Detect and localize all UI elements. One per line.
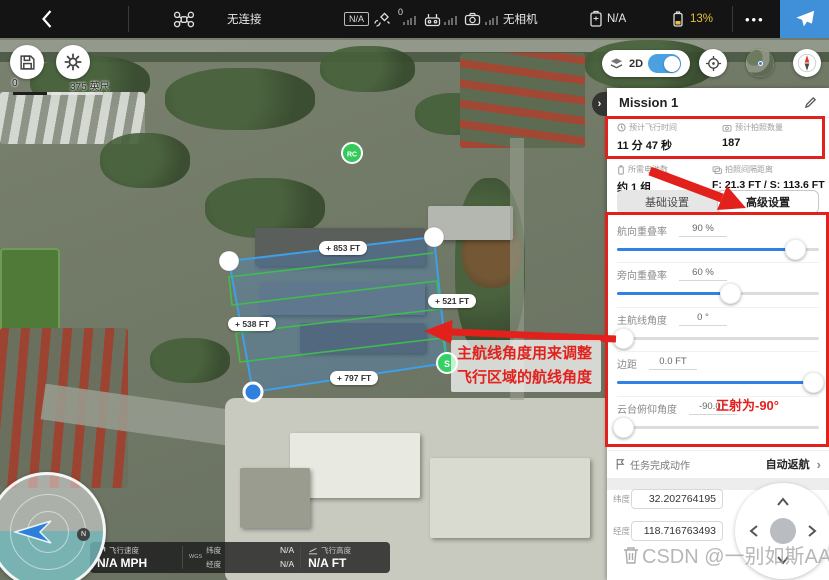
telemetry-lng-label: 经度 — [206, 559, 221, 570]
chevron-right-icon: › — [817, 457, 821, 472]
scale-bar-dark — [13, 92, 47, 95]
rc-battery-percent: 13% — [690, 0, 713, 38]
slider-value-field[interactable]: 0 ° — [679, 312, 727, 326]
edit-pencil-icon[interactable] — [804, 96, 817, 109]
camera-small-icon — [722, 124, 732, 132]
camera-status: 无相机 — [503, 0, 538, 38]
app-screen: S RC + 853 FT + 521 FT + 538 FT + 797 FT… — [0, 0, 829, 580]
nudge-right-button[interactable] — [805, 524, 819, 538]
slider-knob[interactable] — [613, 417, 634, 438]
mission-title: Mission 1 — [619, 95, 678, 110]
topbar-divider — [128, 6, 129, 32]
map-trees — [320, 46, 415, 92]
map-trees — [150, 338, 230, 383]
scale-zero-label: 0 — [12, 78, 18, 89]
nudge-dpad — [735, 483, 829, 579]
slider-knob[interactable] — [720, 283, 741, 304]
stat-photo-count: 预计拍照数量 187 — [722, 122, 826, 149]
map-trees — [165, 68, 315, 130]
compass-north-badge: N — [77, 528, 90, 541]
edge-distance-label[interactable]: + 797 FT — [330, 371, 378, 385]
latitude-label: 纬度 — [607, 493, 631, 505]
aircraft-connection-status[interactable]: 无连接 — [227, 0, 262, 38]
side-overlap-slider[interactable] — [617, 292, 819, 295]
tab-basic-settings[interactable]: 基础设置 — [617, 190, 717, 214]
telemetry-altitude: 飞行高度 N/A FT — [301, 542, 389, 573]
back-button[interactable] — [40, 0, 53, 38]
topbar-divider — [732, 6, 733, 32]
scale-distance-label: 375 英尺 — [70, 78, 109, 93]
map-2d-toggle[interactable] — [648, 54, 681, 73]
takeoff-airplane-icon — [794, 8, 816, 30]
altitude-label: 飞行高度 — [321, 545, 351, 556]
compass-reset-button[interactable] — [793, 49, 821, 77]
map-mode-control[interactable]: 2D — [602, 50, 690, 77]
slider-group-side-overlap: 旁向重叠率 60 % — [607, 266, 829, 310]
aircraft-icon — [173, 0, 195, 38]
telemetry-coordinates: WGS 纬度N/A 经度N/A — [183, 542, 300, 573]
takeoff-button[interactable] — [780, 0, 829, 38]
slider-value-field[interactable]: 0.0 FT — [649, 356, 697, 370]
toggle-knob — [664, 56, 680, 72]
telemetry-lat-label: 纬度 — [206, 545, 221, 556]
slider-knob[interactable] — [785, 239, 806, 260]
map-settings-button[interactable] — [56, 45, 90, 79]
flag-icon — [615, 458, 625, 470]
divider — [617, 262, 819, 263]
more-icon: ••• — [745, 12, 765, 27]
telemetry-lat-value: N/A — [280, 545, 294, 556]
stat-photo-interval: 拍照间隔距离 F: 21.3 FT / S: 113.6 FT — [712, 164, 827, 191]
map-building — [428, 206, 513, 240]
front-overlap-slider[interactable] — [617, 248, 819, 251]
telemetry-lng-value: N/A — [280, 559, 294, 570]
satellite-icon[interactable] — [374, 0, 391, 38]
map-trees — [100, 133, 190, 188]
speed-value: N/A MPH — [97, 556, 175, 570]
slider-label: 航向重叠率 — [617, 223, 667, 238]
back-chevron-icon — [40, 9, 53, 29]
slider-label: 边距 — [617, 356, 637, 371]
save-icon — [19, 54, 36, 71]
camera-signal-bars-icon — [485, 15, 498, 25]
slider-label: 旁向重叠率 — [617, 267, 667, 282]
slider-knob[interactable] — [803, 372, 824, 393]
battery-small-icon — [617, 165, 625, 175]
slider-group-margin: 边距 0.0 FT — [607, 355, 829, 399]
latitude-input[interactable]: 32.202764195 — [631, 489, 723, 509]
aircraft-battery-icon[interactable] — [588, 0, 604, 38]
camera-icon[interactable] — [464, 0, 481, 38]
crosshair-icon — [705, 55, 722, 72]
scale-bar-light — [47, 92, 103, 95]
nudge-left-button[interactable] — [747, 524, 761, 538]
minimap-preview — [746, 49, 774, 77]
edge-distance-label[interactable]: + 521 FT — [428, 294, 476, 308]
edge-distance-label[interactable]: + 538 FT — [228, 317, 276, 331]
slider-value-field[interactable]: 60 % — [679, 267, 727, 281]
slider-value-field[interactable]: 90 % — [679, 223, 727, 237]
map-building — [300, 323, 425, 353]
slider-group-route-angle: 主航线角度 0 ° — [607, 311, 829, 355]
clock-icon — [617, 123, 626, 132]
altitude-icon — [308, 546, 318, 555]
slider-label: 云台俯仰角度 — [617, 401, 677, 416]
finish-action-label: 任务完成动作 — [630, 457, 761, 472]
minimap-location-dot — [758, 61, 763, 66]
locate-button[interactable] — [699, 49, 727, 77]
altitude-value: N/A FT — [308, 556, 382, 570]
flight-mode-badge: N/A — [344, 0, 369, 38]
nudge-center-button[interactable] — [770, 518, 796, 544]
map-building — [260, 283, 425, 315]
telemetry-bar: 飞行速度 N/A MPH WGS 纬度N/A 经度N/A 飞行高度 N/A FT — [90, 542, 390, 573]
nudge-up-button[interactable] — [776, 495, 790, 509]
map-building — [430, 458, 590, 538]
divider — [617, 307, 819, 308]
map-layers-icon — [609, 57, 624, 70]
compass-needle-icon — [796, 52, 818, 74]
edge-distance-label[interactable]: + 853 FT — [319, 241, 367, 255]
gimbal-pitch-slider[interactable] — [617, 426, 819, 429]
rc-battery-icon[interactable] — [671, 0, 685, 38]
finish-action-value: 自动返航 — [766, 456, 810, 472]
map-buildings-red — [460, 53, 585, 148]
route-angle-slider[interactable] — [617, 337, 819, 340]
slider-group-front-overlap: 航向重叠率 90 % — [607, 222, 829, 266]
speed-label: 飞行速度 — [109, 545, 139, 556]
map-building — [240, 468, 310, 528]
route-angle-note: 主航线角度用来调整 飞行区域的航线角度 — [451, 340, 601, 392]
mission-header: Mission 1 — [607, 88, 829, 118]
slider-knob[interactable] — [613, 328, 634, 349]
divider — [617, 351, 819, 352]
aircraft-heading-arrow-icon — [13, 519, 59, 545]
route-angle-note-line1: 主航线角度用来调整 — [457, 342, 601, 366]
settings-tabs: 基础设置 高级设置 — [617, 190, 819, 214]
map-mode-label: 2D — [629, 58, 643, 70]
rc-signal-bars-icon — [444, 15, 457, 25]
interval-frames-icon — [712, 166, 722, 174]
save-mission-button[interactable] — [10, 45, 44, 79]
longitude-label: 经度 — [607, 525, 631, 537]
gimbal-pitch-note: 正射为-90° — [716, 395, 779, 414]
longitude-input[interactable]: 118.716763493 — [631, 521, 723, 541]
gps-signal-bars-icon — [403, 15, 416, 25]
minimap-button[interactable] — [746, 49, 774, 77]
route-angle-note-line2: 飞行区域的航线角度 — [457, 366, 601, 390]
top-status-bar: 无连接 N/A 0 无相机 — [0, 0, 829, 38]
nudge-down-button[interactable] — [776, 553, 790, 567]
datum-label: WGS — [189, 545, 202, 570]
aircraft-battery-value: N/A — [607, 0, 626, 38]
rc-icon[interactable] — [424, 0, 441, 38]
stat-flight-time: 预计飞行时间 11 分 47 秒 — [617, 122, 721, 153]
margin-slider[interactable] — [617, 381, 819, 384]
slider-label: 主航线角度 — [617, 312, 667, 327]
gear-icon — [64, 53, 82, 71]
tab-advanced-settings[interactable]: 高级设置 — [717, 190, 819, 214]
finish-action-row[interactable]: 任务完成动作 自动返航 › — [607, 450, 829, 477]
more-menu-button[interactable]: ••• — [745, 0, 765, 38]
